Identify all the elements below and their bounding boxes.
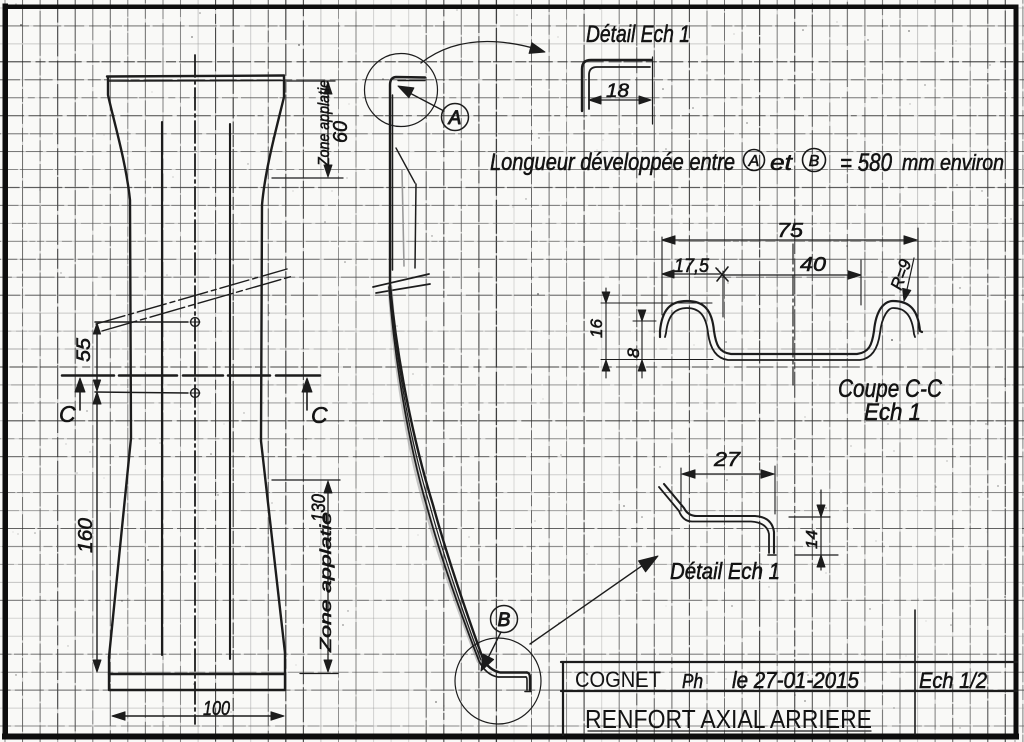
svg-text:B: B [809, 153, 820, 170]
svg-text:Zone applatie: Zone applatie [318, 512, 335, 654]
svg-text:Détail Ech 1: Détail Ech 1 [670, 558, 780, 584]
svg-text:40: 40 [800, 254, 826, 276]
svg-text:100: 100 [203, 698, 230, 720]
svg-text:160: 160 [75, 518, 97, 553]
svg-text:C: C [311, 402, 328, 428]
svg-text:mm environ: mm environ [902, 150, 1004, 175]
svg-text:Ech 1: Ech 1 [864, 399, 921, 426]
svg-text:et: et [770, 150, 793, 175]
svg-text:18: 18 [606, 81, 629, 102]
svg-text:75: 75 [777, 220, 804, 242]
svg-text:= 580: = 580 [840, 149, 892, 177]
svg-text:A: A [448, 108, 462, 129]
svg-text:Détail Ech 1: Détail Ech 1 [586, 21, 690, 48]
svg-text:8: 8 [624, 347, 643, 358]
svg-text:C: C [59, 401, 76, 427]
svg-text:A: A [748, 153, 760, 170]
svg-text:Ph: Ph [682, 671, 703, 693]
svg-text:130: 130 [309, 494, 330, 522]
svg-text:17,5: 17,5 [674, 256, 709, 277]
svg-text:Ech 1/2: Ech 1/2 [919, 668, 987, 693]
svg-text:27: 27 [713, 449, 741, 471]
svg-text:le 27-01-2015: le 27-01-2015 [732, 667, 859, 693]
svg-text:55: 55 [74, 338, 95, 362]
svg-text:16: 16 [587, 318, 606, 338]
svg-text:14: 14 [804, 530, 821, 549]
svg-text:RENFORT AXIAL ARRIERE: RENFORT AXIAL ARRIERE [585, 704, 872, 734]
svg-text:60: 60 [330, 121, 352, 143]
svg-text:Longueur développée entre: Longueur développée entre [490, 149, 735, 176]
svg-text:B: B [498, 610, 511, 631]
svg-text:COGNET: COGNET [575, 667, 661, 692]
